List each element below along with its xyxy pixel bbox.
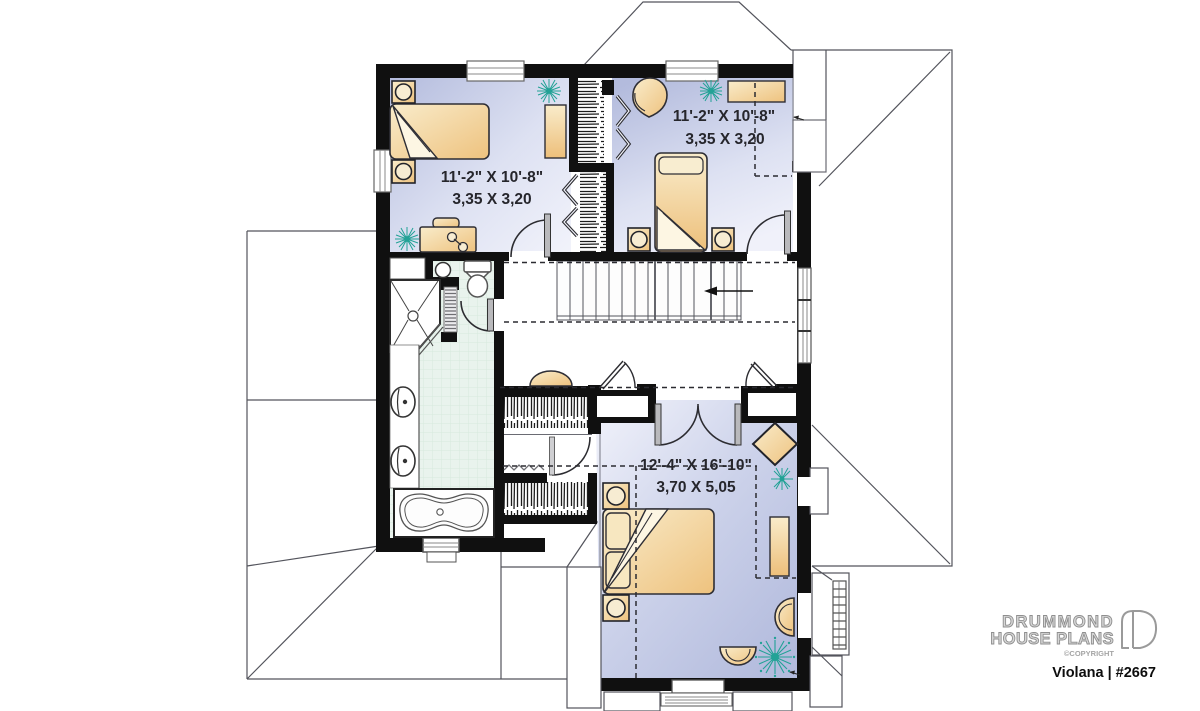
- svg-text:HOUSE PLANS: HOUSE PLANS: [990, 630, 1114, 648]
- svg-text:Violana | #2667: Violana | #2667: [1052, 665, 1156, 681]
- svg-text:3,35 X 3,20: 3,35 X 3,20: [452, 191, 531, 208]
- svg-text:©COPYRIGHT: ©COPYRIGHT: [1064, 649, 1115, 658]
- svg-text:3,35 X 3,20: 3,35 X 3,20: [685, 131, 764, 148]
- svg-text:12'-4" X 16'-10": 12'-4" X 16'-10": [640, 457, 752, 474]
- svg-text:11'-2" X 10'-8": 11'-2" X 10'-8": [673, 108, 775, 125]
- svg-text:3,70 X 5,05: 3,70 X 5,05: [656, 479, 736, 496]
- svg-text:DRUMMOND: DRUMMOND: [1002, 613, 1114, 631]
- svg-text:11'-2" X 10'-8": 11'-2" X 10'-8": [441, 169, 543, 186]
